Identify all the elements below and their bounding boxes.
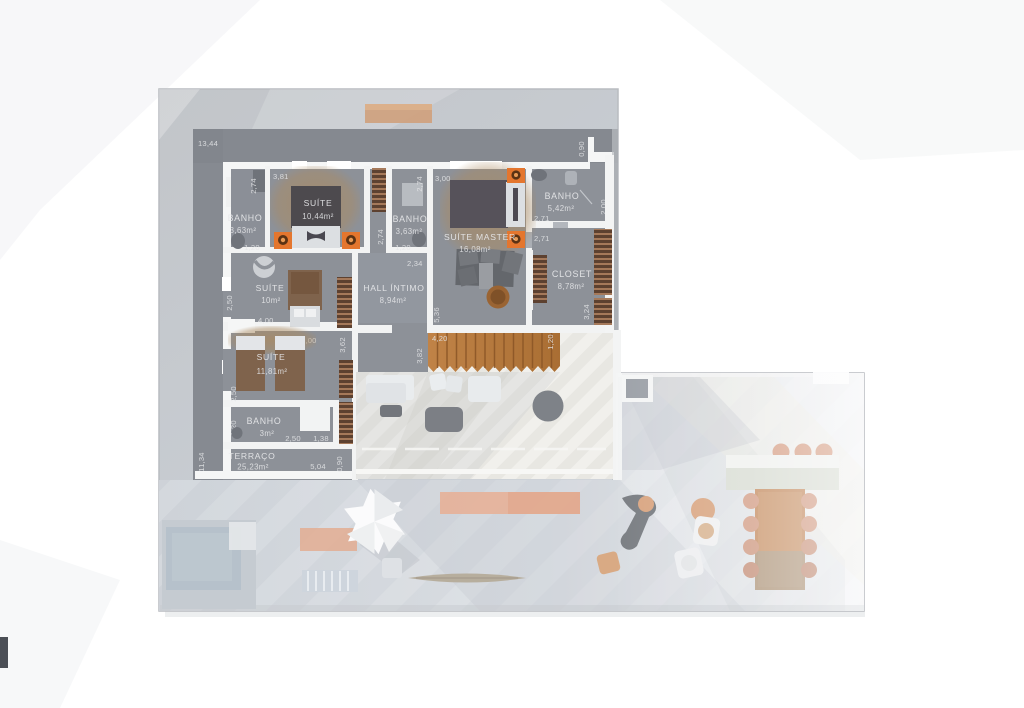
svg-text:SUÍTE MASTER: SUÍTE MASTER	[444, 232, 516, 242]
svg-text:10,44m²: 10,44m²	[302, 212, 333, 221]
svg-text:0,90: 0,90	[577, 141, 586, 157]
svg-text:4,20: 4,20	[432, 334, 448, 343]
svg-text:BANHO: BANHO	[545, 191, 580, 201]
svg-text:3,00: 3,00	[435, 174, 451, 183]
svg-text:5,42m²: 5,42m²	[548, 204, 575, 213]
svg-text:2,50: 2,50	[225, 295, 234, 311]
svg-text:BANHO: BANHO	[393, 214, 428, 224]
svg-text:1,20: 1,20	[244, 243, 260, 252]
svg-text:8,94m²: 8,94m²	[380, 296, 407, 305]
svg-text:5,36: 5,36	[432, 307, 441, 323]
svg-text:10m²: 10m²	[261, 296, 280, 305]
svg-text:3,63m²: 3,63m²	[230, 226, 257, 235]
svg-text:HALL ÍNTIMO: HALL ÍNTIMO	[363, 283, 424, 293]
svg-text:1,20: 1,20	[546, 334, 555, 350]
svg-text:16,08m²: 16,08m²	[459, 245, 490, 254]
svg-text:2,71: 2,71	[534, 214, 550, 223]
svg-text:2,74: 2,74	[249, 178, 258, 194]
svg-text:TERRAÇO: TERRAÇO	[229, 451, 276, 461]
svg-text:BANHO: BANHO	[247, 416, 282, 426]
svg-text:3,62: 3,62	[338, 337, 347, 353]
svg-text:11,81m²: 11,81m²	[257, 367, 288, 376]
svg-text:CLOSET: CLOSET	[552, 269, 592, 279]
svg-text:1,38: 1,38	[313, 434, 329, 443]
svg-text:2,71: 2,71	[534, 234, 550, 243]
svg-text:SUÍTE: SUÍTE	[256, 283, 285, 293]
svg-text:11,34: 11,34	[197, 452, 206, 471]
svg-text:SUÍTE: SUÍTE	[304, 198, 333, 208]
svg-text:2,74: 2,74	[415, 176, 424, 192]
svg-text:25,23m²: 25,23m²	[237, 463, 268, 472]
svg-text:1,20: 1,20	[395, 243, 411, 252]
svg-text:2,74: 2,74	[376, 229, 385, 245]
svg-text:3,24: 3,24	[582, 304, 591, 320]
svg-text:2,50: 2,50	[285, 434, 301, 443]
svg-text:5,04: 5,04	[310, 462, 326, 471]
svg-text:2,50: 2,50	[229, 386, 238, 402]
svg-text:3m²: 3m²	[260, 429, 275, 438]
svg-text:2,34: 2,34	[407, 259, 423, 268]
svg-text:3,82: 3,82	[415, 348, 424, 364]
svg-text:8,78m²: 8,78m²	[558, 282, 585, 291]
svg-text:0,90: 0,90	[335, 456, 344, 472]
svg-text:13,44: 13,44	[198, 139, 218, 148]
svg-text:3,63m²: 3,63m²	[396, 227, 423, 236]
svg-text:BANHO: BANHO	[228, 213, 263, 223]
svg-text:SUÍTE: SUÍTE	[257, 352, 286, 362]
svg-text:3,81: 3,81	[273, 172, 289, 181]
svg-text:4,00: 4,00	[258, 316, 274, 325]
